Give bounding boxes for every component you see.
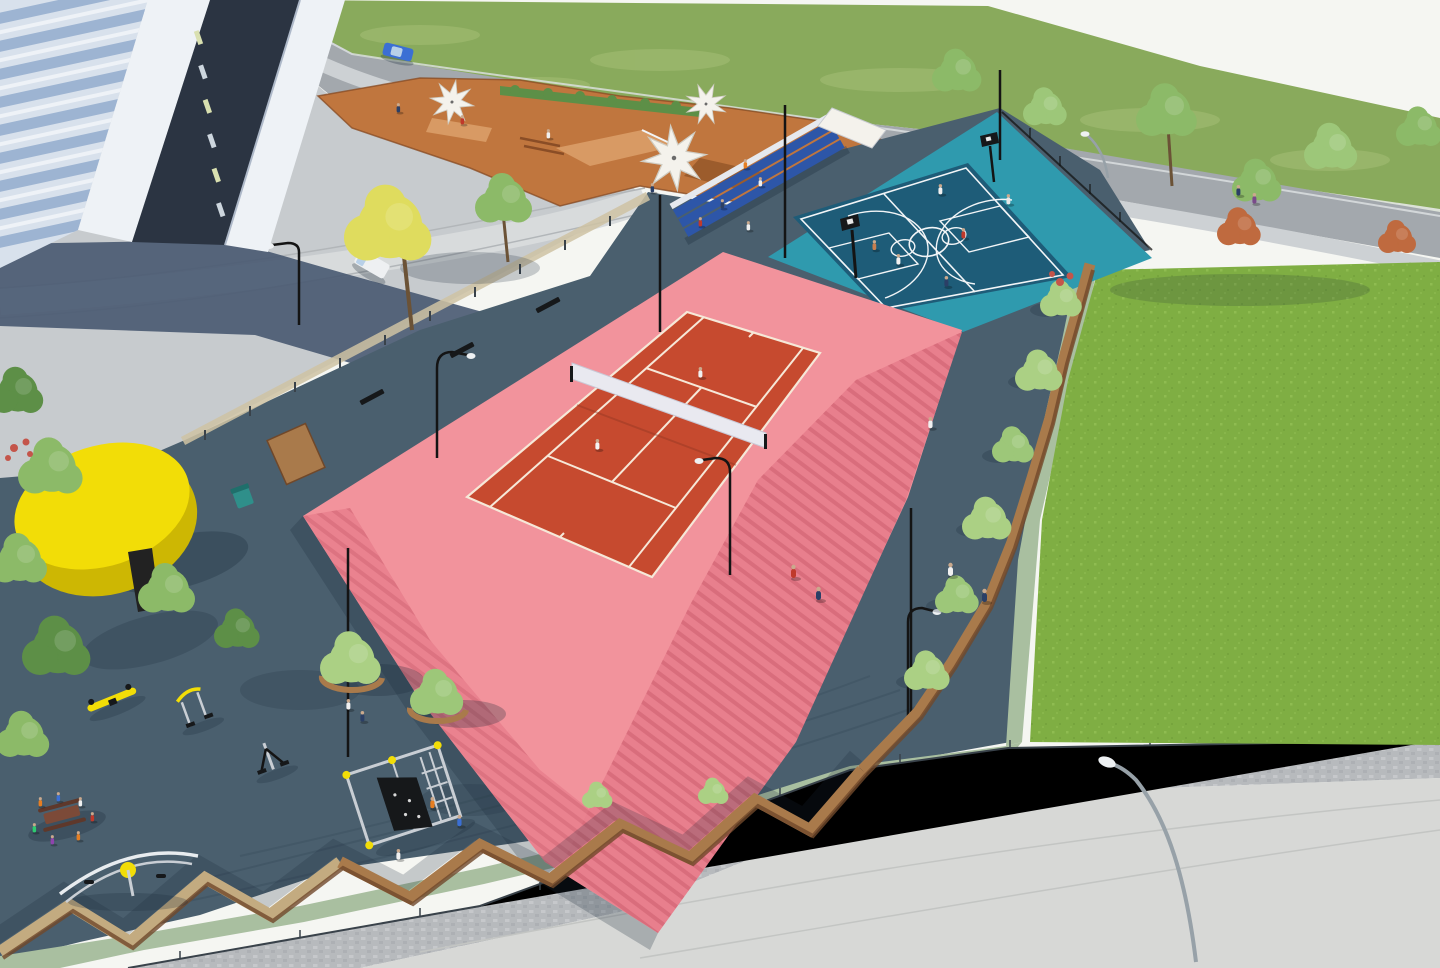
lawn-texture	[1030, 262, 1440, 745]
net-post	[764, 434, 767, 449]
park-render	[0, 0, 1440, 968]
render-canvas	[0, 0, 1440, 968]
treeline-shadow	[1110, 274, 1370, 306]
net-post	[570, 366, 573, 382]
